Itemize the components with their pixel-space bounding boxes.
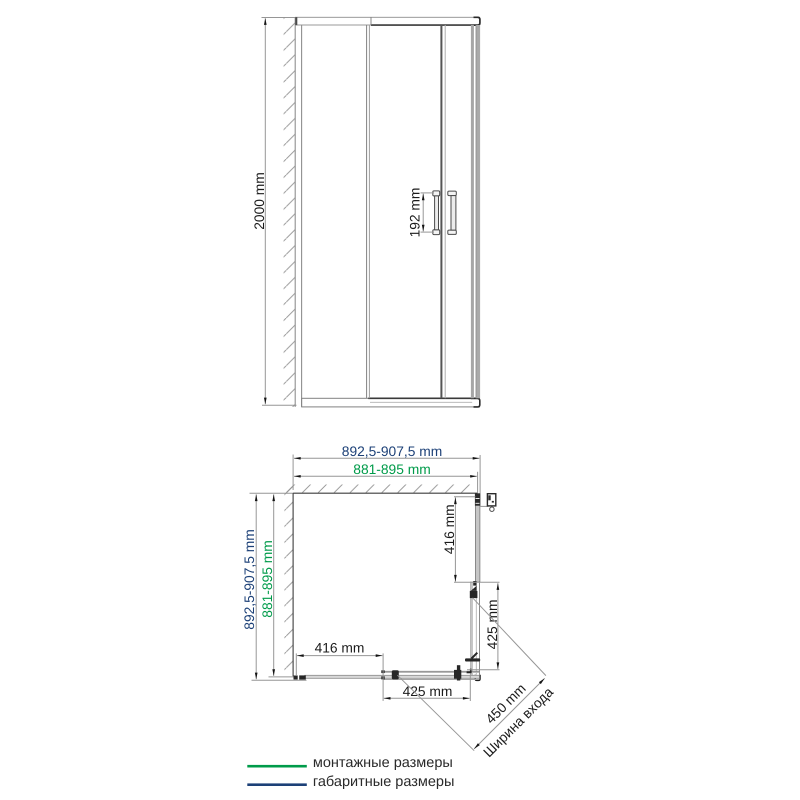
svg-text:881-895 mm: 881-895 mm	[353, 462, 430, 477]
svg-text:892,5-907,5 mm: 892,5-907,5 mm	[342, 444, 442, 459]
svg-text:416 mm: 416 mm	[315, 640, 365, 655]
svg-text:892,5-907,5 mm: 892,5-907,5 mm	[242, 529, 257, 629]
svg-text:416 mm: 416 mm	[442, 504, 457, 554]
svg-text:монтажные размеры: монтажные размеры	[313, 755, 453, 771]
svg-text:2000 mm: 2000 mm	[252, 172, 267, 230]
svg-text:габаритные размеры: габаритные размеры	[313, 774, 455, 790]
svg-text:881-895 mm: 881-895 mm	[260, 540, 275, 617]
svg-text:192 mm: 192 mm	[408, 188, 423, 238]
svg-text:425 mm: 425 mm	[403, 684, 453, 699]
